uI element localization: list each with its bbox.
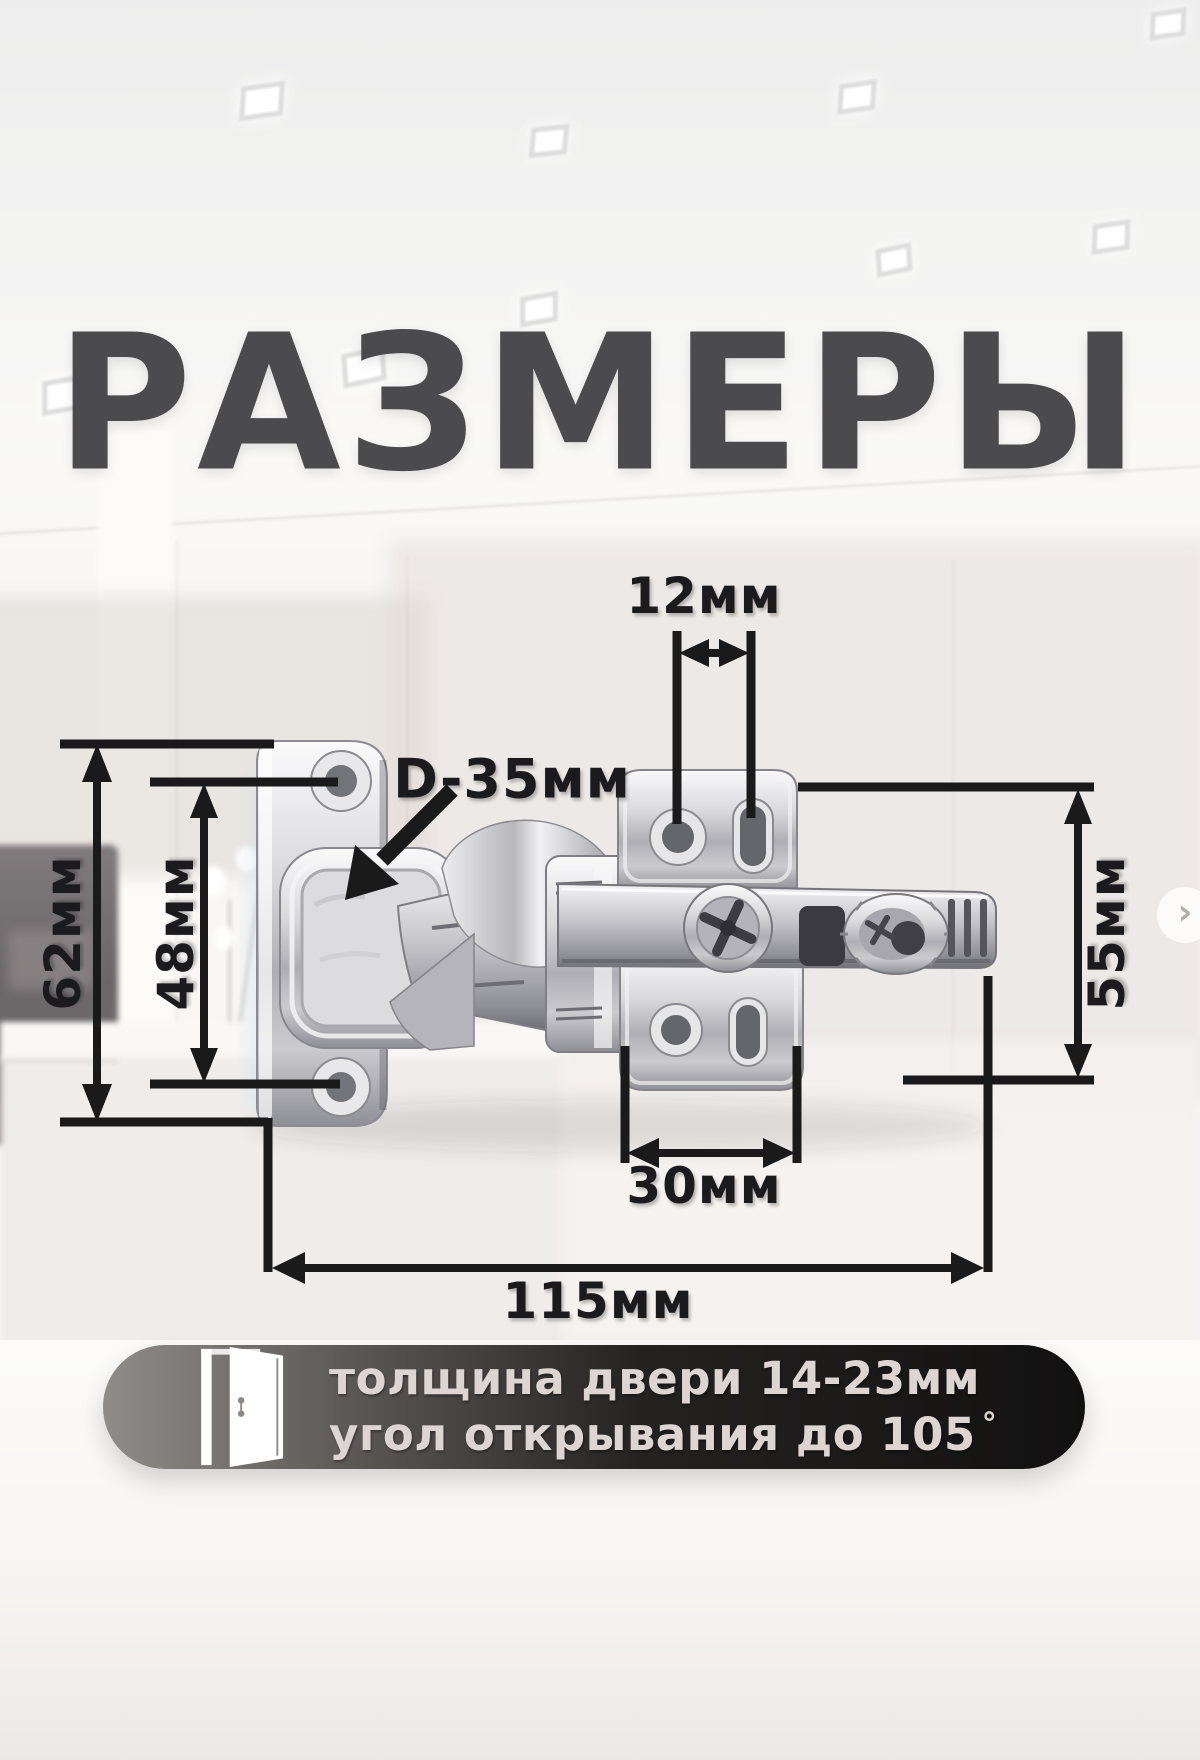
spec-text: толщина двери 14-23мм угол открывания до… (329, 1352, 997, 1463)
dim-55mm-label: 55мм (1078, 855, 1136, 1010)
degree-symbol: ° (982, 1407, 998, 1442)
spec-opening-angle: угол открывания до 105° (329, 1407, 997, 1463)
spec-opening-angle-text: угол открывания до 105 (329, 1408, 976, 1461)
spec-door-thickness: толщина двери 14-23мм (329, 1352, 997, 1407)
dim-55mm-lines (798, 787, 1094, 1080)
dim-115mm-label: 115мм (502, 1272, 693, 1330)
product-infographic: РАЗМЕРЫ (0, 0, 1200, 1760)
open-door-icon (201, 1347, 287, 1467)
spec-badge: толщина двери 14-23мм угол открывания до… (103, 1345, 1085, 1469)
dim-12mm-lines (677, 631, 751, 824)
chevron-right-icon: › (1178, 892, 1193, 933)
dim-12mm-label: 12мм (626, 567, 781, 625)
dim-30mm-label: 30мм (626, 1157, 781, 1215)
dim-62mm-label: 62мм (34, 855, 92, 1010)
dim-48mm-label: 48мм (147, 855, 205, 1010)
dim-d35mm-label: D-35мм (393, 748, 631, 811)
dim-30mm-lines (625, 1046, 797, 1168)
